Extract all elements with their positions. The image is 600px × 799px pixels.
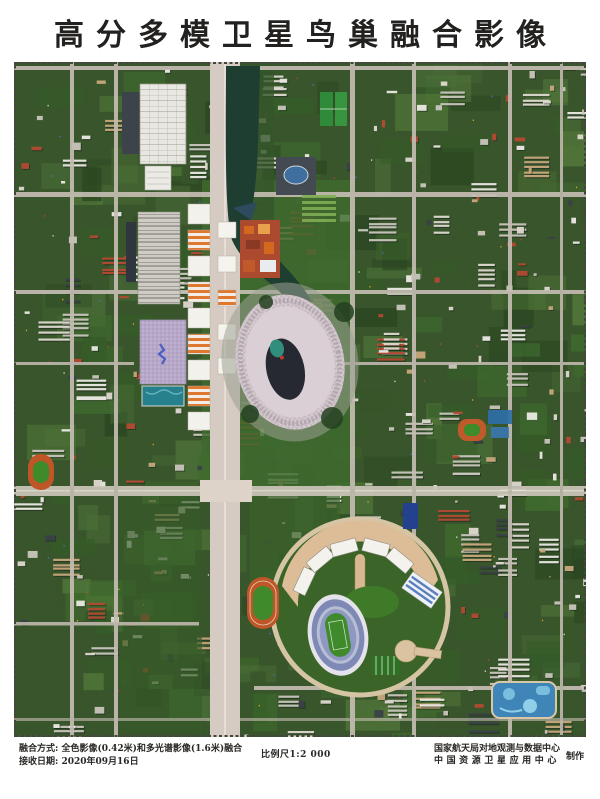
blue-courts bbox=[403, 503, 418, 529]
striped-field-south bbox=[372, 656, 400, 675]
scale-label: 比例尺 bbox=[261, 750, 290, 760]
track-field-center bbox=[247, 577, 279, 629]
oval-roof-tower bbox=[276, 157, 316, 195]
scale-value: 1:2 000 bbox=[290, 750, 331, 760]
water-park bbox=[492, 682, 556, 718]
producer-line1: 国家航天局对地观测与数据中心 bbox=[434, 743, 560, 755]
caption-bar: 融合方式: 全色影像(0.42米)和多光谱影像(1.6米)融合 接收日期: 20… bbox=[14, 742, 586, 782]
producer-line2: 中国资源卫星应用中心 bbox=[434, 755, 560, 767]
image-metadata: 融合方式: 全色影像(0.42米)和多光谱影像(1.6米)融合 接收日期: 20… bbox=[19, 743, 242, 769]
poster-page: 高分多模卫星鸟巢融合影像 bbox=[0, 0, 600, 799]
track-field-west bbox=[28, 454, 54, 490]
axis-interchange bbox=[200, 480, 252, 502]
producer-credit: 国家航天局对地观测与数据中心 中国资源卫星应用中心 制作 bbox=[434, 743, 584, 767]
page-title: 高分多模卫星鸟巢融合影像 bbox=[0, 10, 600, 54]
receive-date-label: 接收日期: bbox=[19, 757, 58, 767]
outdoor-pool bbox=[142, 386, 184, 406]
producer-suffix: 制作 bbox=[566, 749, 584, 762]
water-cube bbox=[140, 320, 186, 406]
map-scale: 比例尺1:2 000 bbox=[261, 747, 331, 760]
fusion-method-label: 融合方式: bbox=[19, 744, 58, 754]
fusion-method-value: 全色影像(0.42米)和多光谱影像(1.6米)融合 bbox=[61, 744, 242, 754]
receive-date-value: 2020年09月16日 bbox=[61, 757, 138, 767]
satellite-image bbox=[14, 62, 586, 737]
